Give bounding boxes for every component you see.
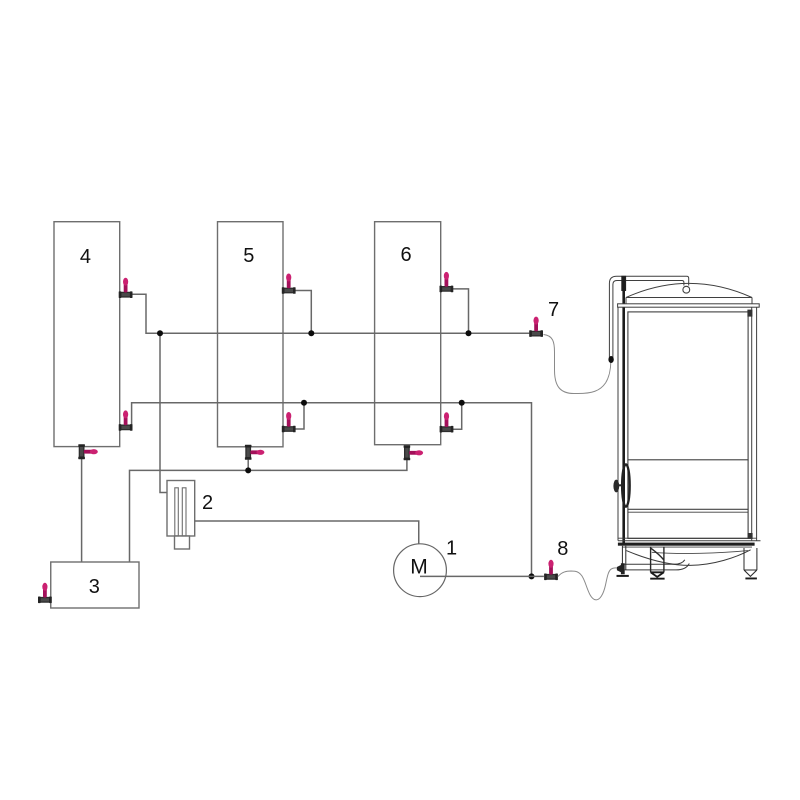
svg-text:6: 6 xyxy=(400,244,411,266)
svg-text:1: 1 xyxy=(446,538,457,560)
svg-text:4: 4 xyxy=(80,246,91,268)
svg-text:2: 2 xyxy=(202,492,213,514)
svg-text:8: 8 xyxy=(557,538,568,560)
svg-text:M: M xyxy=(410,556,428,579)
svg-text:5: 5 xyxy=(243,245,254,267)
svg-text:7: 7 xyxy=(548,299,559,321)
svg-text:3: 3 xyxy=(89,576,100,598)
